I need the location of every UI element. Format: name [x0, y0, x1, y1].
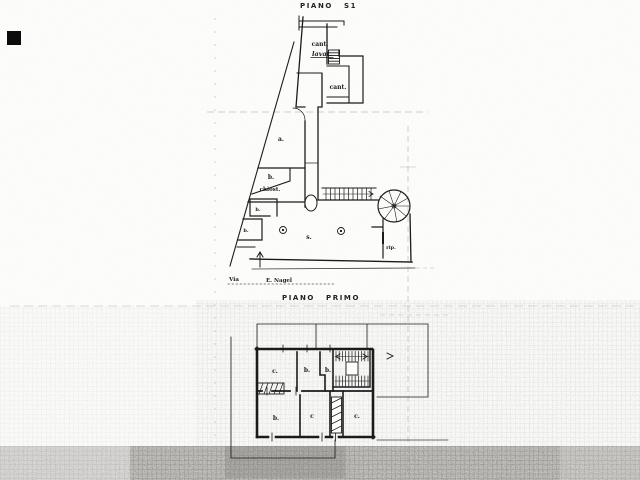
- room-label-low-2: c: [310, 413, 314, 420]
- floor-plans-drawing: cant. lavat. cant. a. b. chiost. b. b. s…: [0, 0, 640, 480]
- room-label-chiost: chiost.: [260, 187, 281, 193]
- scanned-floorplan-page: PIANO S1 PIANO PRIMO: [0, 0, 640, 480]
- room-label-low-3: c.: [354, 413, 360, 420]
- room-label-lavat: lavat.: [312, 50, 332, 58]
- scan-noise-regions: [0, 0, 640, 480]
- street-label-via: Via: [228, 277, 239, 283]
- shaft-hatched: [332, 397, 342, 433]
- room-label-rip: rip.: [386, 245, 396, 251]
- scan-artifact-black-square: [7, 31, 21, 45]
- room-label-up-1: c.: [272, 368, 278, 375]
- room-label-left-1: b.: [255, 207, 260, 213]
- room-label-cant-right: cant.: [330, 84, 347, 91]
- room-label-left-2: b.: [243, 228, 248, 234]
- room-label-low-1: b.: [273, 415, 279, 422]
- room-label-up-3: b.: [325, 367, 331, 374]
- corridor-column: [305, 195, 317, 211]
- room-label-b: b.: [268, 174, 274, 181]
- room-label-hall-s: s.: [306, 234, 311, 241]
- scan-noise-band: [0, 446, 640, 480]
- room-label-a: a.: [278, 136, 284, 143]
- room-label-cant-top: cant.: [312, 41, 329, 48]
- street-label-name: E. Nagel: [266, 278, 292, 284]
- room-label-up-2: b.: [304, 367, 310, 374]
